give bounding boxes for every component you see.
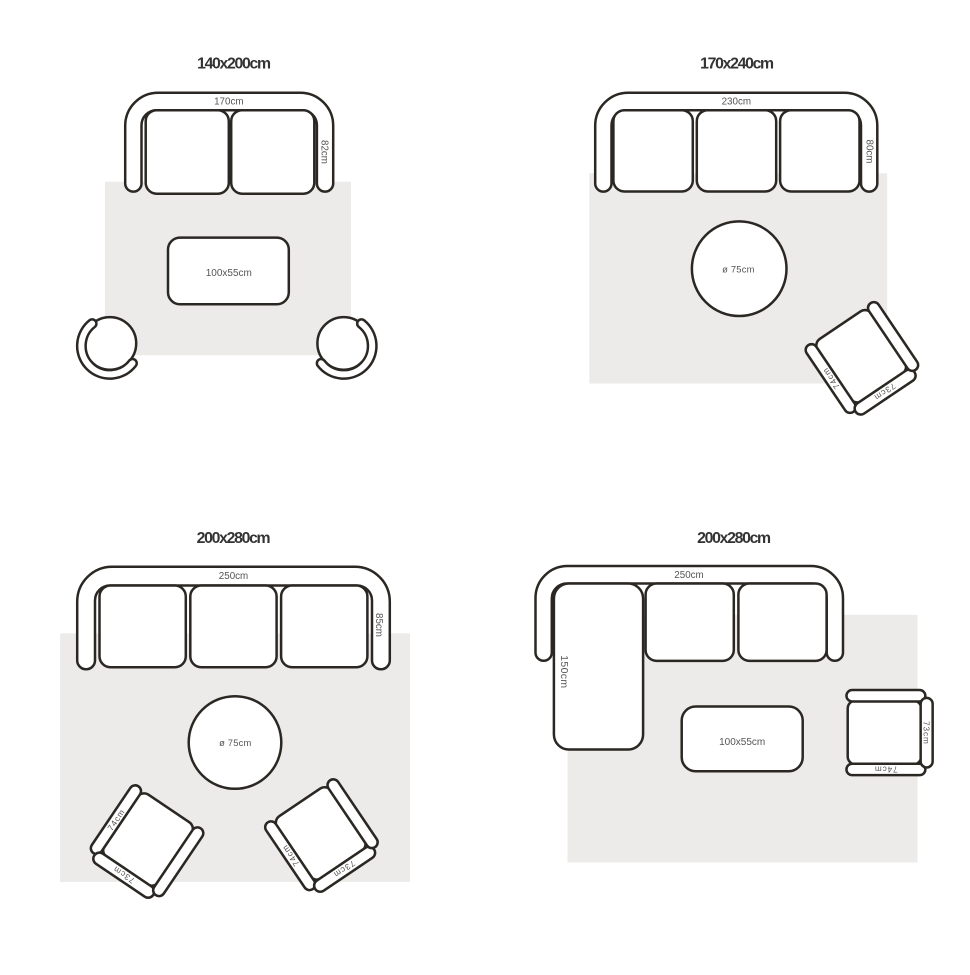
svg-text:230cm: 230cm [722, 97, 751, 108]
svg-text:100x55cm: 100x55cm [719, 737, 765, 748]
svg-text:73cm: 73cm [922, 721, 931, 745]
svg-text:250cm: 250cm [674, 570, 703, 581]
svg-text:200x280cm: 200x280cm [697, 530, 771, 547]
svg-text:150cm: 150cm [558, 655, 569, 688]
svg-text:100x55cm: 100x55cm [206, 268, 252, 279]
svg-text:170x240cm: 170x240cm [700, 56, 774, 73]
svg-text:82cm: 82cm [319, 140, 330, 164]
svg-text:ø 75cm: ø 75cm [219, 737, 251, 748]
svg-text:74cm: 74cm [874, 764, 898, 773]
svg-text:250cm: 250cm [219, 571, 248, 582]
svg-text:80cm: 80cm [863, 140, 874, 164]
svg-text:ø 75cm: ø 75cm [722, 263, 754, 274]
svg-text:85cm: 85cm [373, 613, 384, 637]
svg-text:200x280cm: 200x280cm [197, 530, 271, 547]
svg-text:170cm: 170cm [214, 97, 243, 108]
svg-text:140x200cm: 140x200cm [197, 56, 271, 73]
